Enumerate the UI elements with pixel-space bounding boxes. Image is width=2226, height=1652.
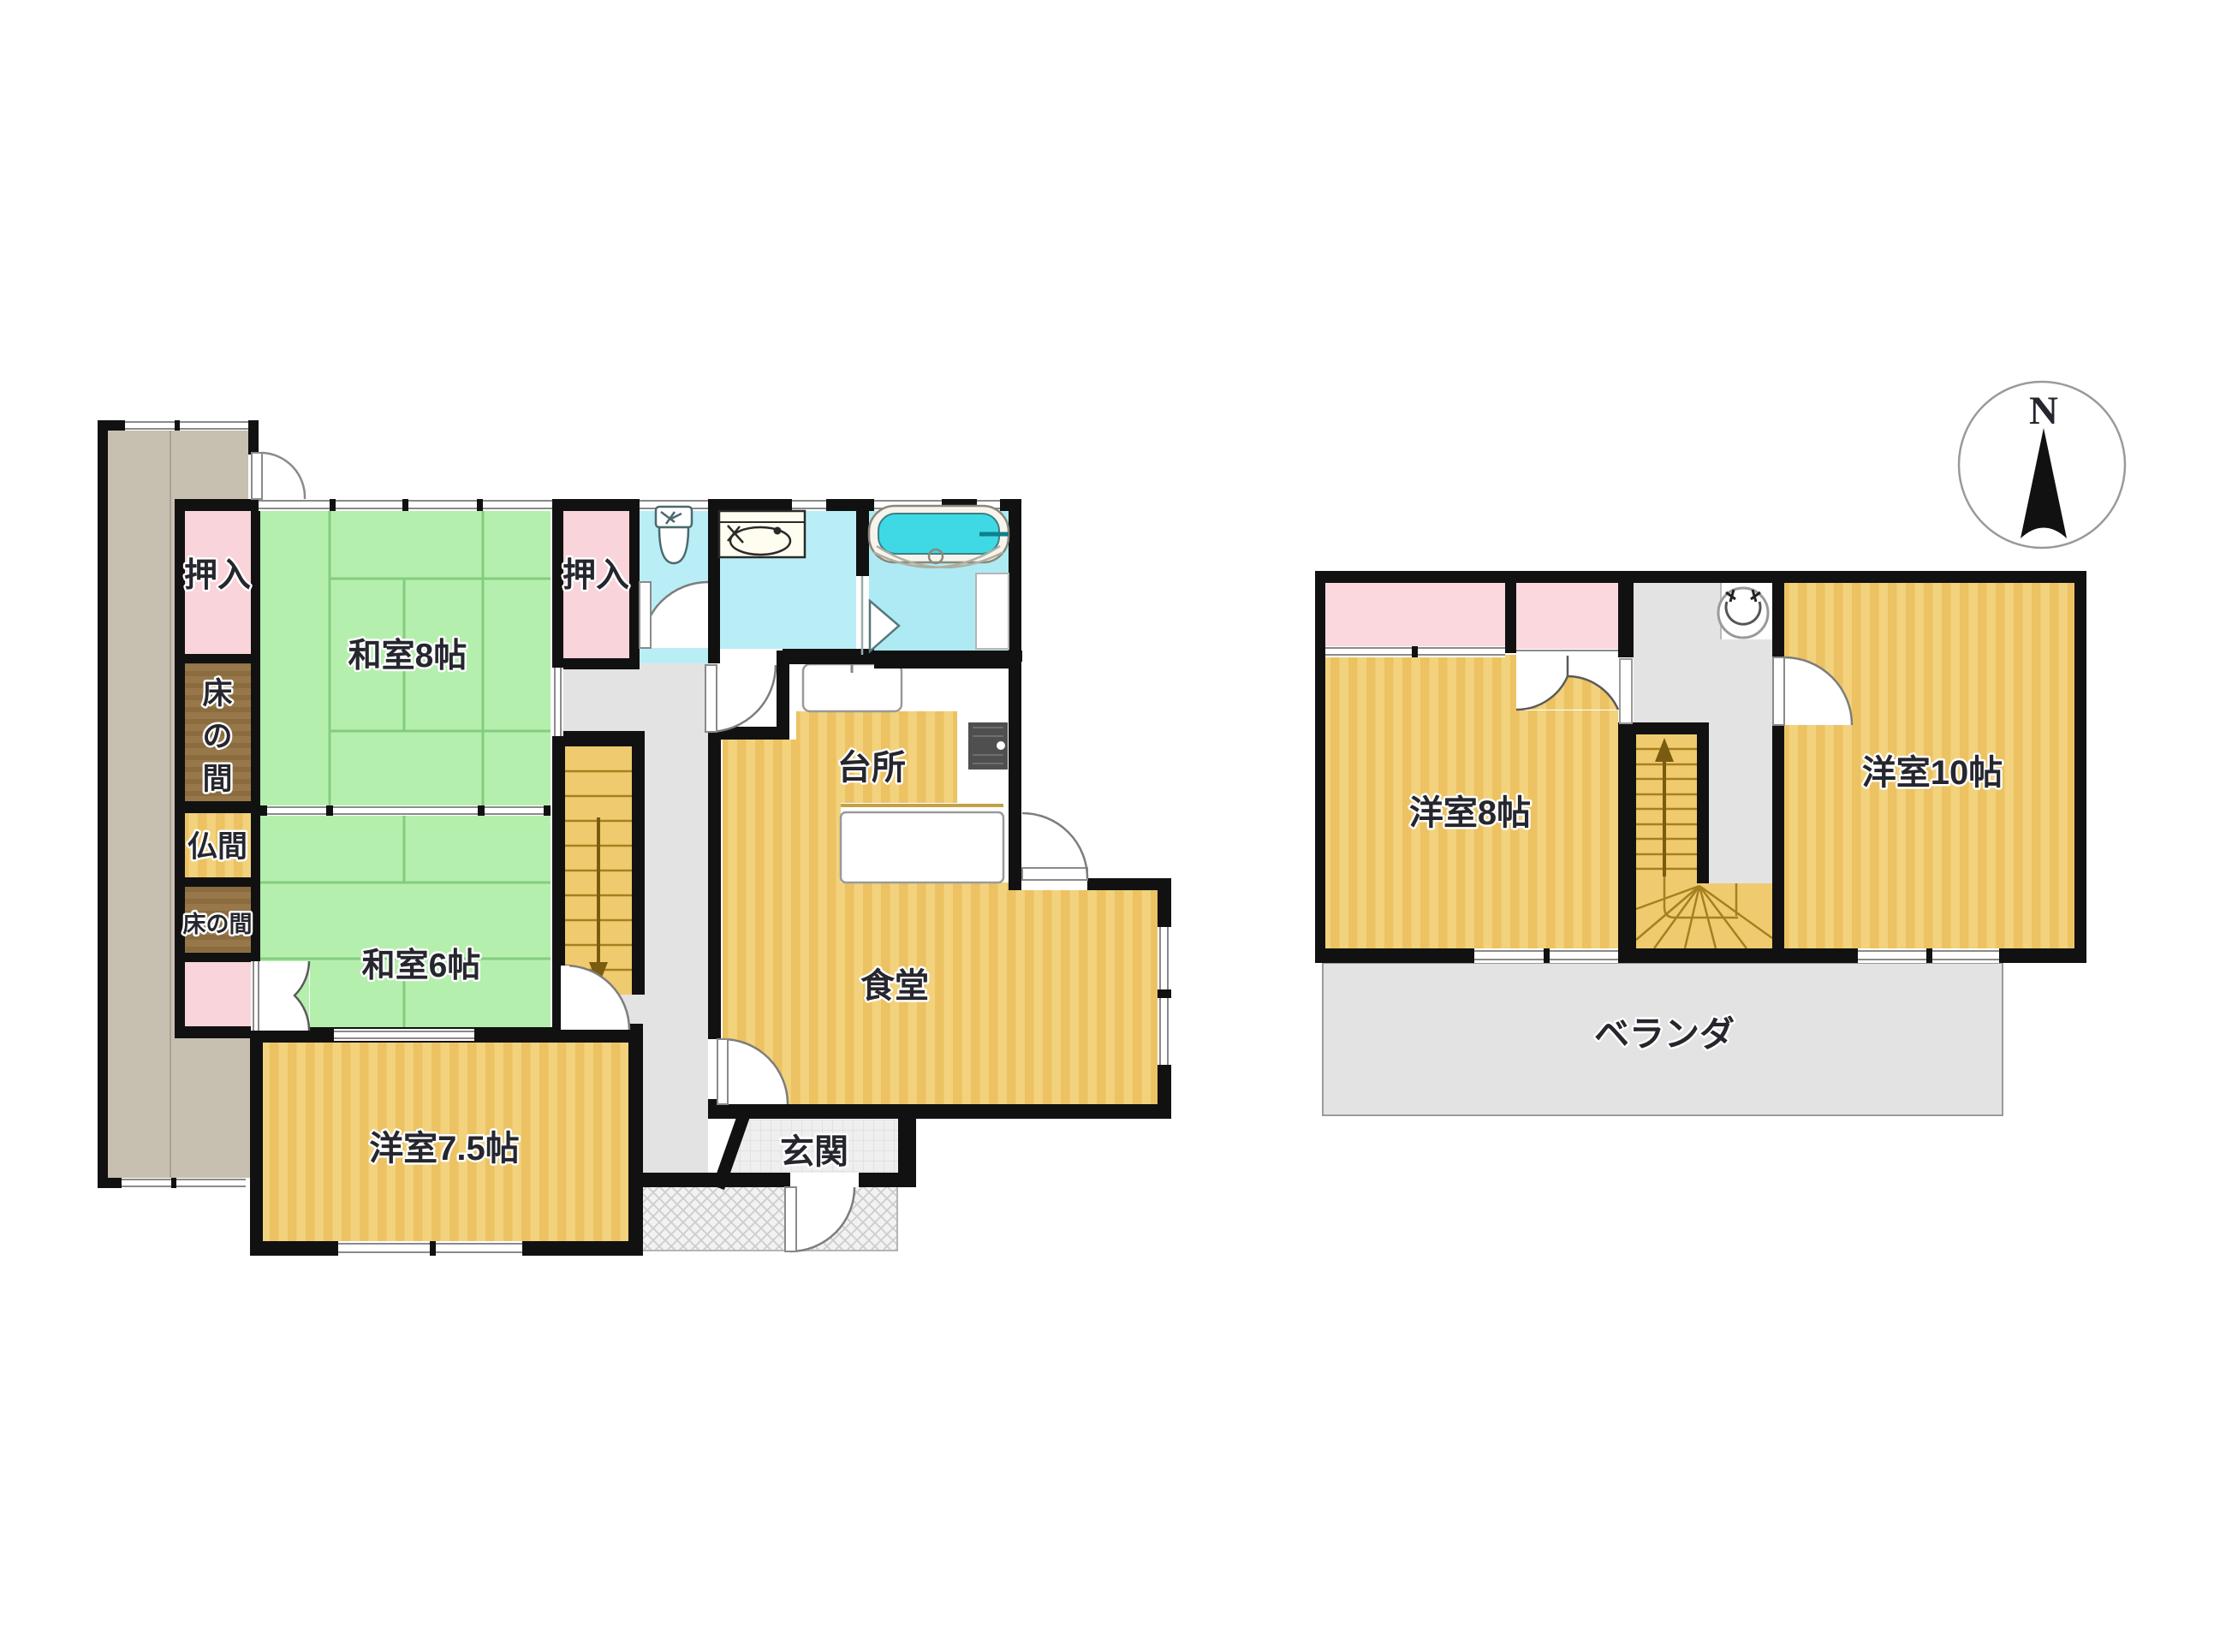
svg-text:和室8帖: 和室8帖 [348,638,467,674]
svg-text:洋室10帖: 洋室10帖 [1862,754,2003,792]
svg-text:間: 間 [202,763,232,796]
svg-text:N: N [2029,389,2058,433]
svg-text:仏間: 仏間 [187,830,247,864]
svg-text:洋室7.5帖: 洋室7.5帖 [369,1130,520,1168]
svg-text:の: の [202,720,232,753]
svg-text:押入: 押入 [184,557,251,594]
svg-text:玄関: 玄関 [780,1133,848,1171]
svg-text:食堂: 食堂 [860,967,929,1005]
svg-text:床の間: 床の間 [183,911,253,937]
svg-text:ベランダ: ベランダ [1594,1014,1735,1054]
svg-text:押入: 押入 [562,557,629,594]
svg-text:洋室8帖: 洋室8帖 [1409,794,1531,832]
svg-text:床: 床 [202,677,232,710]
svg-text:台所: 台所 [837,749,906,787]
svg-text:和室6帖: 和室6帖 [362,948,481,984]
